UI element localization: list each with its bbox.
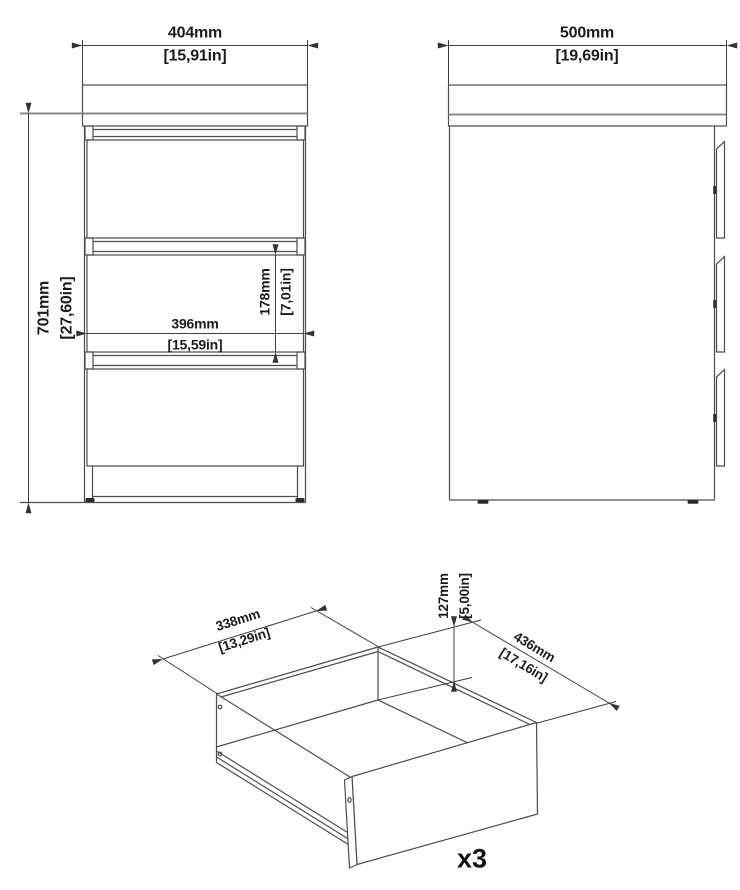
dimension-mm-value: 178mm (257, 268, 271, 315)
dimension-mm-value: 701mm (37, 281, 53, 335)
dimension-mm-value: 396mm (171, 316, 218, 330)
dimension-drawer-front-height: 178mm [7,01in] (257, 268, 292, 315)
dimension-inch-value: [7,01in] (278, 268, 292, 315)
dimension-drawer-height: 127mm [5,00in] (437, 573, 471, 619)
dimension-overall-height: 701mm [27,60in] (37, 276, 76, 339)
dimension-inch-value: [27,60in] (60, 276, 76, 339)
dimension-overall-width: 404mm [15,91in] (163, 26, 226, 65)
dimension-inch-value: [15,59in] (168, 337, 223, 351)
dimension-mm-value: 404mm (168, 26, 222, 42)
dimension-mm-value: 500mm (560, 26, 614, 42)
furniture-dimension-diagram (0, 0, 740, 890)
dimension-drawer-front-width: 396mm [15,59in] (168, 316, 223, 351)
dimension-inch-value: [15,91in] (163, 49, 226, 65)
dimension-mm-value: 127mm (437, 573, 451, 619)
drawer-isometric-drawing (217, 647, 538, 868)
dimension-overall-depth: 500mm [19,69in] (555, 26, 618, 65)
dimension-inch-value: [5,00in] (458, 573, 472, 619)
technical-drawing-page: 404mm [15,91in] 500mm [19,69in] 701mm [2… (0, 0, 740, 890)
drawer-quantity-label: x3 (457, 844, 487, 875)
dimension-inch-value: [19,69in] (555, 49, 618, 65)
side-view-drawing (449, 85, 727, 504)
